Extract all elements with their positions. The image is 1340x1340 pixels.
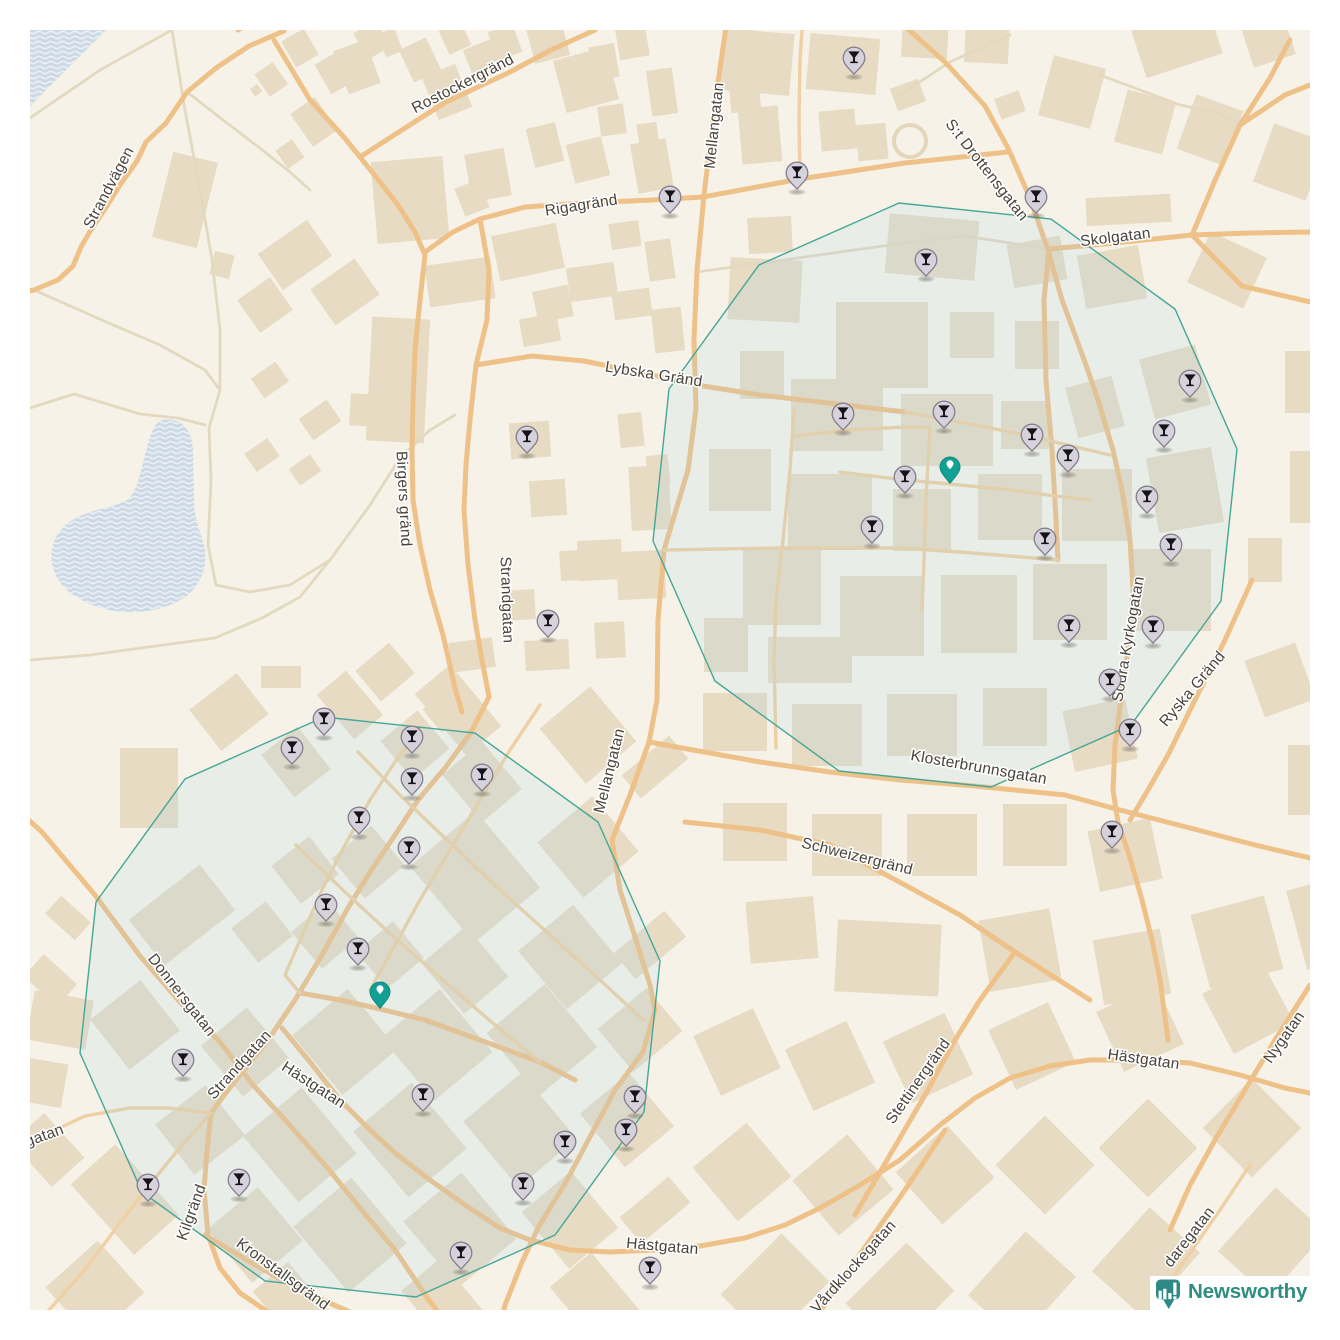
svg-text:Newsworthy: Newsworthy: [1188, 1280, 1308, 1303]
svg-text:Strandgatan: Strandgatan: [496, 556, 516, 643]
